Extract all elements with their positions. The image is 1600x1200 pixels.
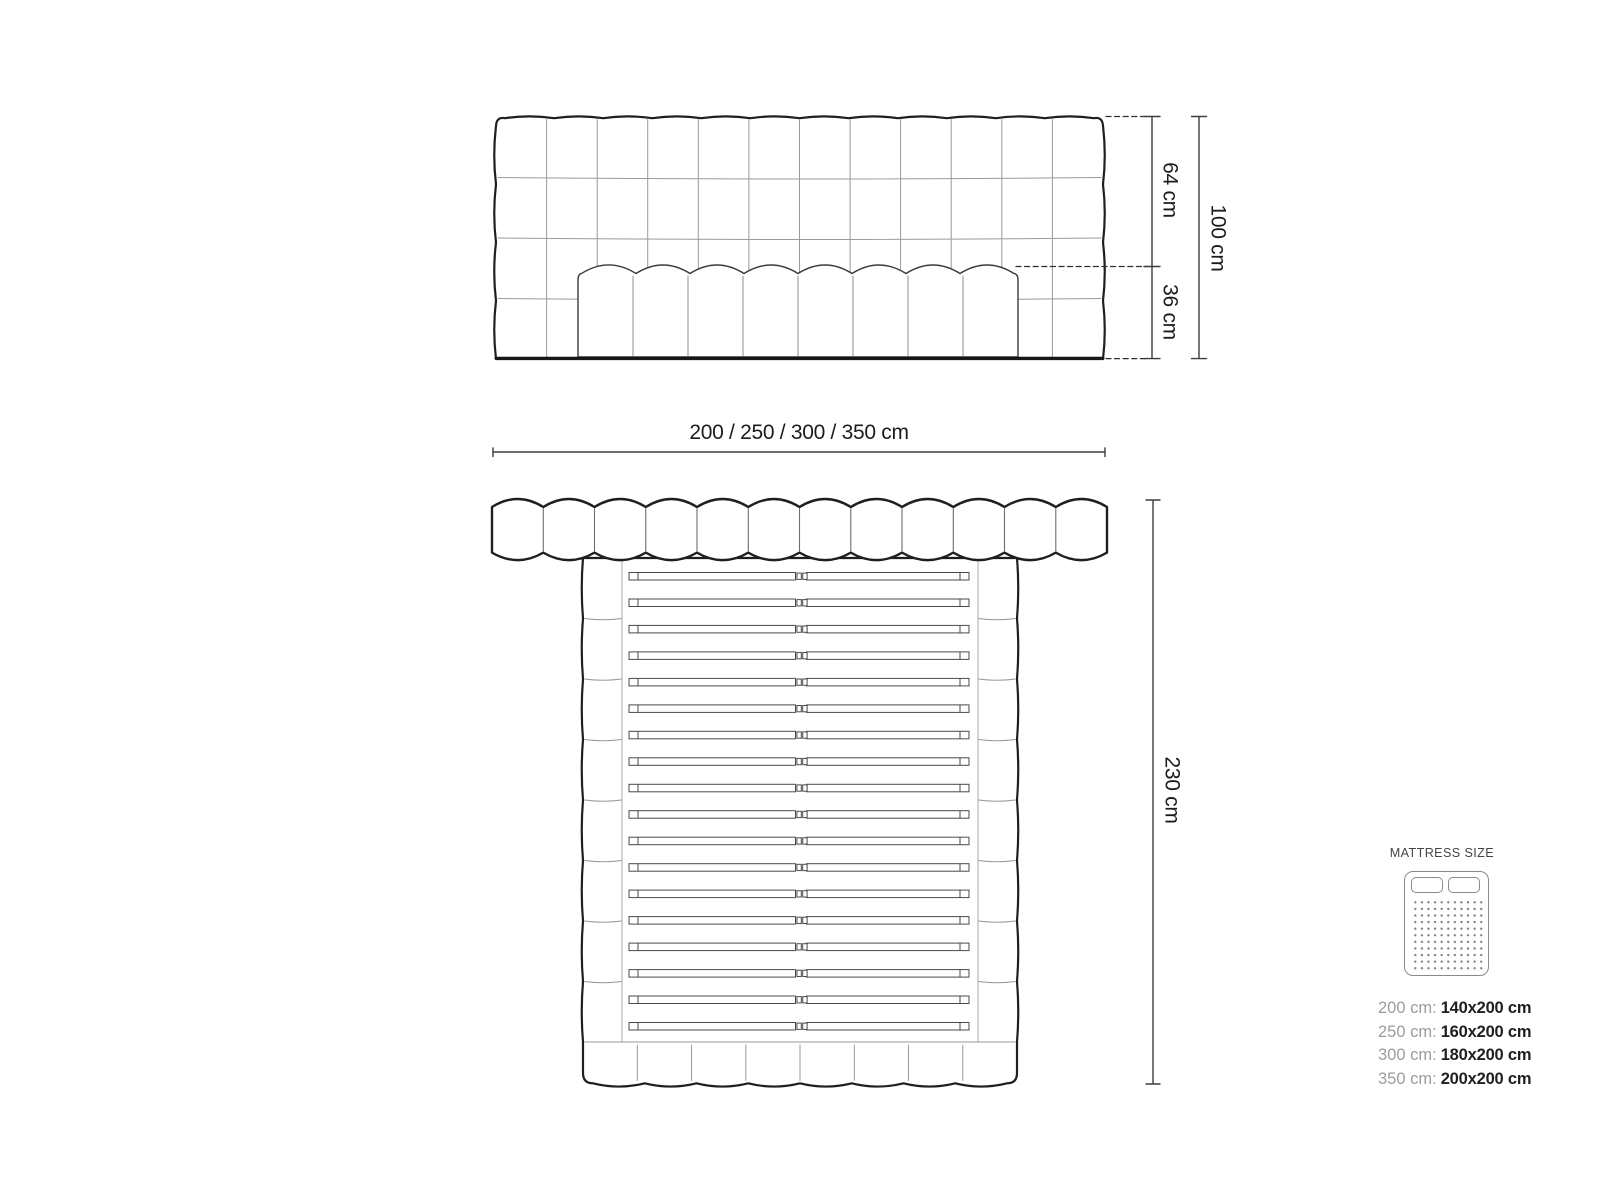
width-options-label: 200 / 250 / 300 / 350 cm bbox=[689, 421, 908, 444]
bed-technical-diagram: 200 / 250 / 300 / 350 cm 64 cm 36 cm 100… bbox=[0, 0, 1600, 1200]
slat-row bbox=[629, 917, 969, 925]
bed-length-label: 230 cm bbox=[1161, 756, 1184, 823]
bed-top-view-drawing bbox=[492, 499, 1107, 1087]
mattress-size-row: 300 cm:180x200 cm bbox=[1378, 1044, 1496, 1068]
mattress-size-row: 350 cm:200x200 cm bbox=[1378, 1068, 1496, 1092]
mattress-size-value: 160x200 cm bbox=[1441, 1023, 1532, 1041]
slat-row bbox=[629, 943, 969, 951]
slat-row bbox=[629, 705, 969, 713]
diagram-svg: 200 / 250 / 300 / 350 cm 64 cm 36 cm 100… bbox=[0, 0, 1600, 1200]
mattress-size-value: 180x200 cm bbox=[1441, 1046, 1532, 1064]
slat-row bbox=[629, 599, 969, 607]
mattress-size-value: 140x200 cm bbox=[1441, 999, 1532, 1017]
mattress-size-list: 200 cm:140x200 cm 250 cm:160x200 cm 300 … bbox=[1378, 997, 1496, 1091]
slat-row bbox=[629, 970, 969, 978]
slat-row bbox=[629, 811, 969, 819]
mattress-size-row: 250 cm:160x200 cm bbox=[1378, 1021, 1496, 1045]
slat-row bbox=[629, 864, 969, 872]
slat-row bbox=[629, 890, 969, 898]
mattress-size-row: 200 cm:140x200 cm bbox=[1378, 997, 1496, 1021]
slat-row bbox=[629, 996, 969, 1004]
slat-row bbox=[629, 652, 969, 660]
slat-row bbox=[629, 625, 969, 633]
slat-row bbox=[629, 1023, 969, 1031]
pillow-icon bbox=[1448, 877, 1480, 893]
mattress-quilting-dots bbox=[1411, 898, 1483, 970]
mattress-size-value: 200x200 cm bbox=[1441, 1070, 1532, 1088]
headboard-lower-height-label: 36 cm bbox=[1159, 284, 1182, 340]
slat-row bbox=[629, 837, 969, 845]
headboard-upper-height-label: 64 cm bbox=[1159, 162, 1182, 218]
bed-width-label: 200 cm: bbox=[1378, 999, 1437, 1017]
slat-row bbox=[629, 784, 969, 792]
slat-row bbox=[629, 678, 969, 686]
mattress-size-legend: MATTRESS SIZE 200 cm:140x200 cm 250 cm:1… bbox=[1378, 845, 1496, 1091]
slat-row bbox=[629, 573, 969, 581]
bed-width-label: 250 cm: bbox=[1378, 1023, 1437, 1041]
slat-row bbox=[629, 758, 969, 766]
legend-title: MATTRESS SIZE bbox=[1382, 845, 1496, 860]
bed-width-label: 350 cm: bbox=[1378, 1070, 1437, 1088]
headboard-total-height-label: 100 cm bbox=[1207, 204, 1230, 271]
headboard-front-view-drawing bbox=[494, 116, 1105, 359]
slat-row bbox=[629, 731, 969, 739]
pillow-icon bbox=[1411, 877, 1443, 893]
bed-width-label: 300 cm: bbox=[1378, 1046, 1437, 1064]
mattress-icon bbox=[1404, 871, 1489, 976]
